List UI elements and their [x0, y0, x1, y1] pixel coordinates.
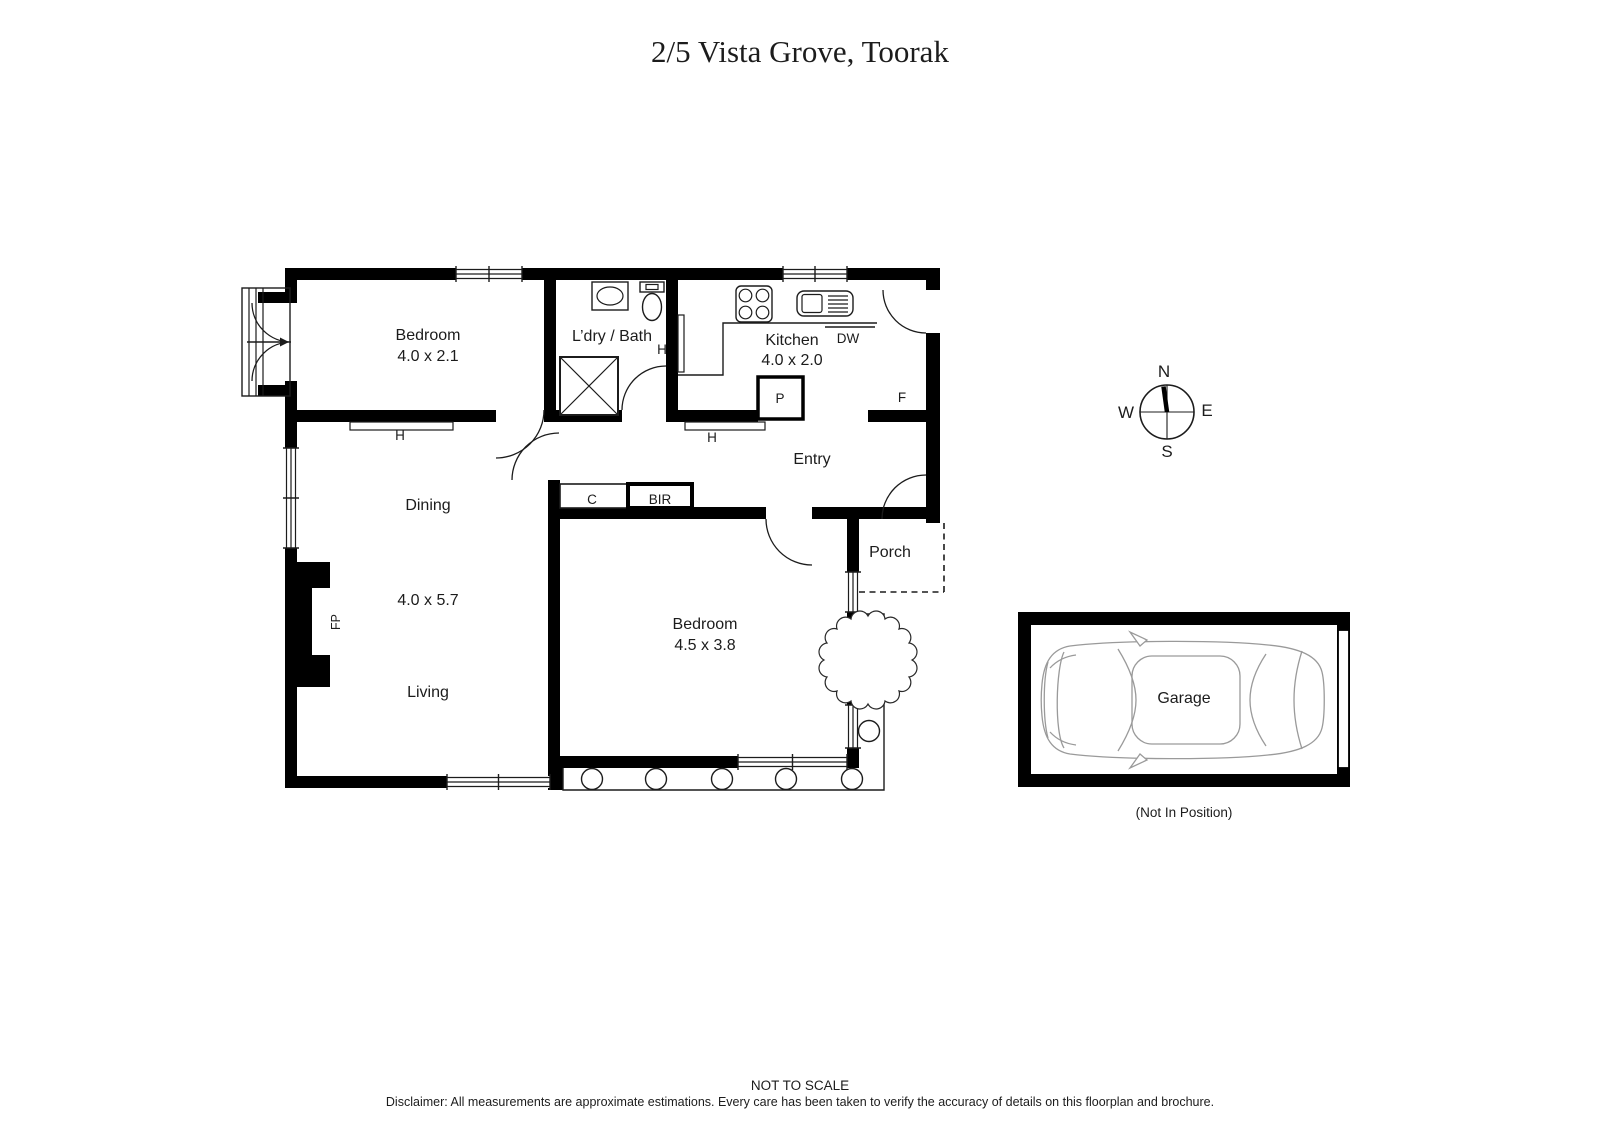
heater-unit	[678, 315, 684, 372]
veranda-column	[776, 769, 797, 790]
compass-e: E	[1201, 401, 1212, 420]
floorplan-page: 2/5 Vista Grove, Toorak	[0, 0, 1600, 1131]
entry-arrow-icon	[247, 338, 289, 347]
entry-label: Entry	[793, 451, 830, 468]
bedroom1-dims: 4.0 x 2.1	[397, 348, 458, 365]
cooktop-icon	[736, 286, 772, 322]
footer: NOT TO SCALE Disclaimer: All measurement…	[386, 1078, 1214, 1109]
veranda-column	[859, 721, 880, 742]
porch-label: Porch	[869, 544, 911, 561]
veranda-column	[712, 769, 733, 790]
window	[845, 572, 861, 612]
window	[283, 448, 299, 548]
pantry-label: P	[775, 391, 784, 406]
garage: Garage (Not In Position)	[1018, 612, 1350, 820]
window	[783, 266, 847, 282]
compass-icon: N S W E	[1118, 362, 1213, 461]
window	[456, 266, 522, 282]
living-dining-dims: 4.0 x 5.7	[397, 592, 458, 609]
closets	[560, 484, 692, 508]
garage-note: (Not In Position)	[1136, 805, 1233, 820]
bedroom1-door	[496, 410, 544, 458]
entry-steps	[242, 288, 290, 396]
toilet-icon	[640, 282, 664, 321]
laundry-door	[622, 366, 666, 410]
compass-n: N	[1158, 362, 1170, 381]
sink-icon	[797, 291, 853, 316]
fireplace-label: FP	[329, 614, 343, 630]
garage-label: Garage	[1157, 690, 1210, 707]
kitchen-label: Kitchen	[765, 332, 818, 349]
heater-label-1: H	[395, 428, 405, 443]
dining-label: Dining	[405, 497, 450, 514]
bedroom2-dims: 4.5 x 3.8	[674, 637, 735, 654]
heater-label-2: H	[657, 342, 667, 357]
shower-icon	[560, 357, 618, 415]
basin-icon	[592, 282, 628, 310]
veranda-column	[582, 769, 603, 790]
bedroom1-label: Bedroom	[396, 327, 461, 344]
scale-note: NOT TO SCALE	[751, 1078, 849, 1093]
dishwasher-label: DW	[837, 331, 860, 346]
veranda-column	[646, 769, 667, 790]
fridge-label: F	[898, 390, 906, 405]
cupboard-label: C	[587, 492, 597, 507]
bedroom2-door	[766, 519, 812, 565]
bedroom2-label: Bedroom	[673, 616, 738, 633]
tree-icon	[819, 611, 917, 709]
bir-label: BIR	[649, 492, 672, 507]
walls	[258, 268, 940, 790]
laundry-bath-label: L’dry / Bath	[572, 328, 652, 345]
floor-plan: Bedroom 4.0 x 2.1 L’dry / Bath Kitchen 4…	[242, 266, 944, 790]
hall-heaters	[350, 422, 765, 430]
compass-s: S	[1161, 442, 1172, 461]
garage-door	[1338, 630, 1349, 768]
window	[738, 754, 847, 770]
window	[447, 774, 550, 790]
living-label: Living	[407, 684, 449, 701]
kitchen-dims: 4.0 x 2.0	[761, 352, 822, 369]
kitchen-back-door	[883, 290, 926, 333]
heater-label-3: H	[707, 430, 717, 445]
page-title: 2/5 Vista Grove, Toorak	[651, 34, 949, 69]
window	[845, 705, 861, 748]
floorplan-canvas: 2/5 Vista Grove, Toorak	[0, 0, 1600, 1131]
disclaimer: Disclaimer: All measurements are approxi…	[386, 1095, 1214, 1109]
compass-w: W	[1118, 403, 1134, 422]
hall-door	[512, 433, 559, 480]
veranda-column	[842, 769, 863, 790]
